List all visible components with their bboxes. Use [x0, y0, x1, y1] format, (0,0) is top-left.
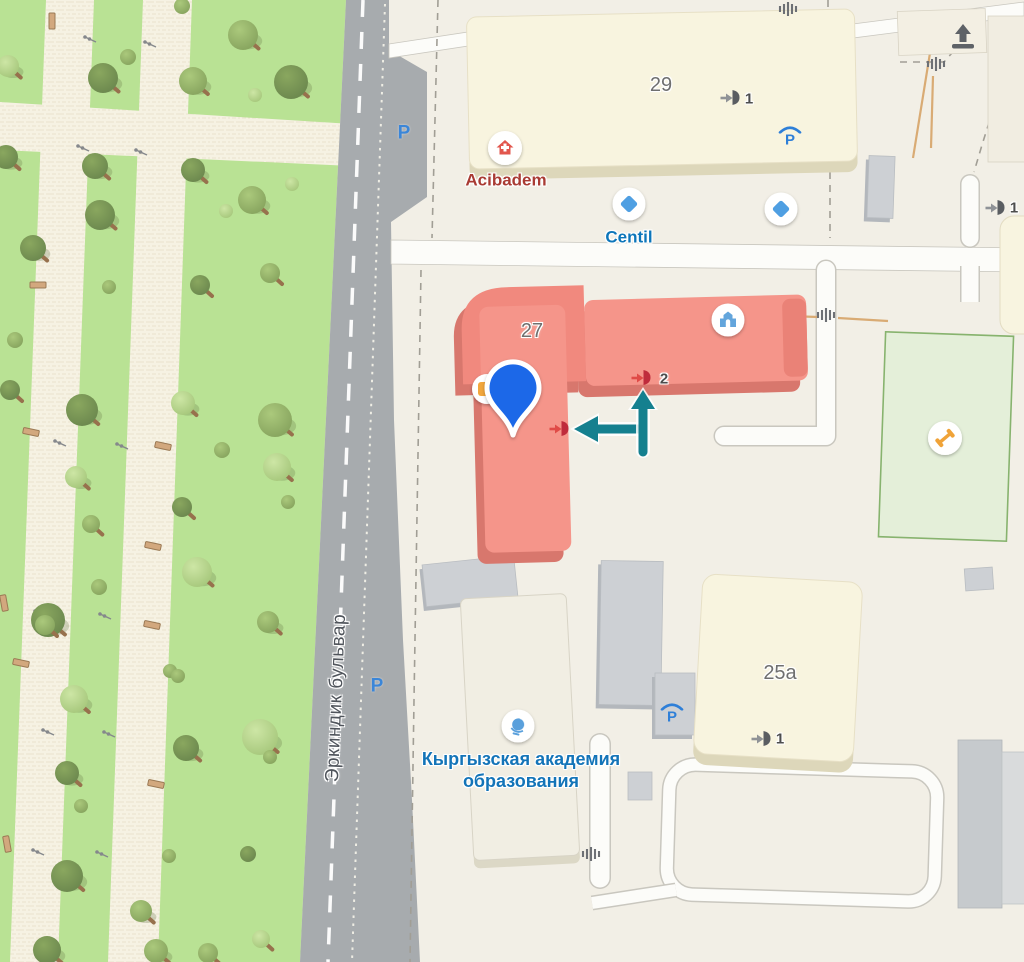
poi-label-centil[interactable]: Centil: [605, 229, 652, 246]
building-icon[interactable]: [712, 304, 745, 337]
map-viewport[interactable]: 29 27 25a 1 2 1 1 P P P P Acibadem Centi…: [0, 0, 1024, 962]
covered-parking-label: P: [785, 133, 795, 148]
diamond-icon[interactable]: [613, 188, 646, 221]
entrance-number: 2: [660, 372, 668, 387]
globe-icon[interactable]: [502, 710, 535, 743]
map-canvas: [0, 0, 1024, 962]
building-27-number[interactable]: 27: [521, 321, 543, 341]
hospital-icon[interactable]: [488, 131, 522, 165]
building-29-number[interactable]: 29: [650, 75, 672, 95]
building-25a-number[interactable]: 25a: [763, 663, 796, 683]
poi-label-academy[interactable]: Кыргызская академия образования: [422, 748, 620, 792]
academy-label-line1: Кыргызская академия: [422, 748, 620, 770]
entrance-number: 1: [776, 732, 784, 747]
street-parking-label[interactable]: P: [398, 124, 411, 143]
covered-parking-icon[interactable]: P: [660, 702, 684, 725]
street-parking-label[interactable]: P: [371, 677, 384, 696]
entrance-number: 1: [1010, 201, 1018, 216]
covered-parking-label: P: [667, 710, 677, 725]
dumbbell-icon[interactable]: [928, 421, 962, 455]
academy-label-line2: образования: [422, 770, 620, 792]
covered-parking-icon[interactable]: P: [778, 125, 802, 148]
diamond-icon[interactable]: [765, 193, 798, 226]
entrance-number: 1: [745, 92, 753, 107]
poi-label-acibadem[interactable]: Acibadem: [465, 172, 546, 189]
